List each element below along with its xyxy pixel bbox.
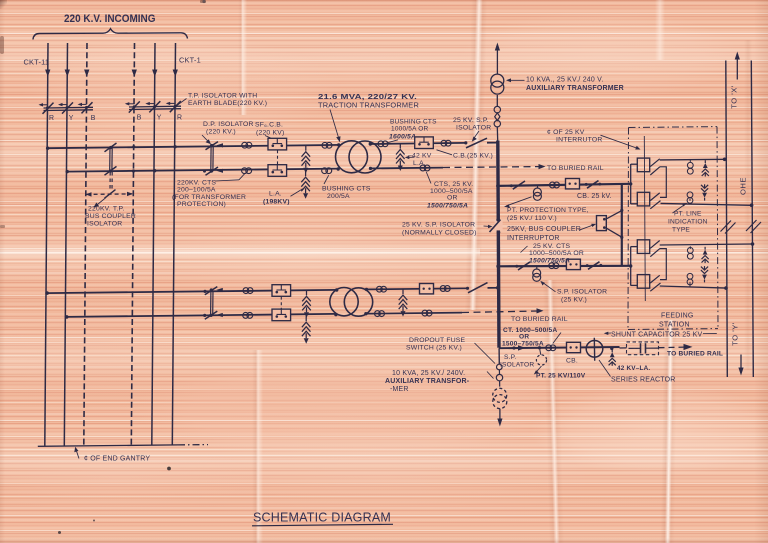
svg-text:-MER: -MER xyxy=(390,386,409,393)
svg-text:1000/5A OR: 1000/5A OR xyxy=(391,126,429,133)
svg-text:¢ OF END GANTRY: ¢ OF END GANTRY xyxy=(84,456,150,463)
svg-text:PT. PROTECTION TYPE,: PT. PROTECTION TYPE, xyxy=(507,207,589,214)
svg-text:SERIES REACTOR: SERIES REACTOR xyxy=(611,377,676,384)
svg-text:1500–750/5A: 1500–750/5A xyxy=(502,341,544,348)
svg-text:10 KVA, 25 KV./ 240V.: 10 KVA, 25 KV./ 240V. xyxy=(392,370,465,377)
svg-text:C.B.(25 KV.): C.B.(25 KV.) xyxy=(453,153,493,160)
svg-text:AUXILIARY TRANSFOR-: AUXILIARY TRANSFOR- xyxy=(385,378,470,385)
svg-text:ISOLATOR: ISOLATOR xyxy=(87,221,122,228)
svg-text:B: B xyxy=(91,115,96,122)
svg-text:AUXILIARY TRANSFORMER: AUXILIARY TRANSFORMER xyxy=(526,85,624,92)
svg-text:TRACTION TRANSFORMER: TRACTION TRANSFORMER xyxy=(318,101,419,110)
svg-text:SCHEMATIC DIAGRAM: SCHEMATIC DIAGRAM xyxy=(253,511,391,525)
svg-text:CT. 1000–500/5A: CT. 1000–500/5A xyxy=(503,327,557,334)
svg-text:STATION: STATION xyxy=(659,322,690,329)
svg-text:TO BURIED RAIL: TO BURIED RAIL xyxy=(667,351,723,358)
svg-text:DROPOUT FUSE: DROPOUT FUSE xyxy=(409,337,466,344)
svg-text:200/5A: 200/5A xyxy=(327,193,350,200)
svg-text:1500/750/5A: 1500/750/5A xyxy=(529,258,570,265)
svg-text:25 KV. CTS: 25 KV. CTS xyxy=(533,243,571,250)
svg-text:TO BURIED RAIL: TO BURIED RAIL xyxy=(547,165,604,172)
svg-text:OR: OR xyxy=(519,334,529,341)
svg-text:(FOR TRANSFORMER: (FOR TRANSFORMER xyxy=(172,194,246,201)
svg-text:(NORMALLY CLOSED): (NORMALLY CLOSED) xyxy=(402,230,477,237)
svg-text:L.A.: L.A. xyxy=(413,160,426,167)
svg-text:1500/750/5A: 1500/750/5A xyxy=(427,203,468,210)
svg-text:BUS COUPLER: BUS COUPLER xyxy=(85,213,136,220)
svg-text:TO 'X': TO 'X' xyxy=(730,85,739,109)
svg-text:Y: Y xyxy=(69,115,74,122)
svg-text:OR: OR xyxy=(447,195,458,202)
svg-text:B: B xyxy=(137,115,142,122)
svg-text:S.P. ISOLATOR: S.P. ISOLATOR xyxy=(557,289,607,296)
svg-text:CB. 25 kV.: CB. 25 kV. xyxy=(577,193,612,200)
svg-text:(220 KV): (220 KV) xyxy=(256,130,284,137)
svg-text:R: R xyxy=(49,115,54,122)
svg-text:BUSHING CTS: BUSHING CTS xyxy=(322,186,371,193)
svg-text:(25 KV.): (25 KV.) xyxy=(561,297,587,304)
svg-text:INTERRUPTOR: INTERRUPTOR xyxy=(507,235,560,242)
svg-text:TO BURIED RAIL: TO BURIED RAIL xyxy=(511,316,568,323)
svg-text:INTERRUTOR: INTERRUTOR xyxy=(556,137,602,144)
svg-text:(25 KV./ 110 V.): (25 KV./ 110 V.) xyxy=(507,215,557,222)
svg-text:1600/5A: 1600/5A xyxy=(389,134,416,141)
svg-text:SF₆.C.B.: SF₆.C.B. xyxy=(255,122,283,129)
svg-text:CKT-11: CKT-11 xyxy=(24,58,50,67)
svg-text:T.P. ISOLATOR WITH: T.P. ISOLATOR WITH xyxy=(188,93,257,100)
svg-text:–42 KV: –42 KV xyxy=(408,153,432,160)
svg-text:¢ OF 25 KV: ¢ OF 25 KV xyxy=(547,129,585,136)
svg-text:42 KV–LA.: 42 KV–LA. xyxy=(617,365,650,372)
svg-text:FEEDING: FEEDING xyxy=(661,313,694,320)
svg-text:R: R xyxy=(177,115,182,122)
svg-text:SHUNT CAPACITOR 25 KV: SHUNT CAPACITOR 25 KV xyxy=(611,332,702,339)
svg-text:INDICATION: INDICATION xyxy=(668,219,708,226)
svg-text:220KV. CTS: 220KV. CTS xyxy=(177,180,216,187)
svg-text:PT. 25 KV/110V: PT. 25 KV/110V xyxy=(536,373,586,380)
svg-text:Y: Y xyxy=(157,115,162,122)
svg-text:L.A.: L.A. xyxy=(269,191,282,198)
svg-text:25KV, BUS COUPLER: 25KV, BUS COUPLER xyxy=(507,226,581,233)
svg-text:220 K.V. INCOMING: 220 K.V. INCOMING xyxy=(64,13,156,25)
svg-text:TO 'Y': TO 'Y' xyxy=(731,322,740,346)
svg-text:CKT-1: CKT-1 xyxy=(179,56,201,65)
svg-text:OHE: OHE xyxy=(739,177,748,195)
svg-text:ISOLATOR: ISOLATOR xyxy=(456,125,491,132)
svg-text:(198KV): (198KV) xyxy=(263,199,290,206)
svg-text:10 KVA., 25 KV./ 240 V.: 10 KVA., 25 KV./ 240 V. xyxy=(526,77,604,84)
svg-text:EARTH BLADE(220 KV.): EARTH BLADE(220 KV.) xyxy=(188,100,267,107)
svg-text:S.P.: S.P. xyxy=(504,354,516,361)
svg-text:ISOLATOR: ISOLATOR xyxy=(500,362,534,369)
svg-text:1000–500/5A OR: 1000–500/5A OR xyxy=(529,250,584,257)
svg-text:CB.: CB. xyxy=(566,358,578,365)
svg-text:200–100/5A: 200–100/5A xyxy=(177,187,216,194)
svg-text:PT. LINE: PT. LINE xyxy=(674,211,702,218)
svg-text:SWITCH (25 KV.): SWITCH (25 KV.) xyxy=(406,345,462,352)
svg-text:25 KV. S.P. ISOLATOR: 25 KV. S.P. ISOLATOR xyxy=(402,222,475,229)
svg-text:D.P. ISOLATOR: D.P. ISOLATOR xyxy=(203,121,254,128)
svg-text:BUSHING CTS: BUSHING CTS xyxy=(390,119,437,126)
svg-text:CTS, 25 KV.: CTS, 25 KV. xyxy=(434,181,473,188)
svg-text:25 KV. S.P.: 25 KV. S.P. xyxy=(453,117,489,124)
svg-text:(220 KV.): (220 KV.) xyxy=(206,129,236,136)
svg-text:220KV. T.P.: 220KV. T.P. xyxy=(88,206,124,213)
svg-text:TYPE: TYPE xyxy=(672,227,690,234)
svg-text:PROTECTION): PROTECTION) xyxy=(177,201,226,208)
